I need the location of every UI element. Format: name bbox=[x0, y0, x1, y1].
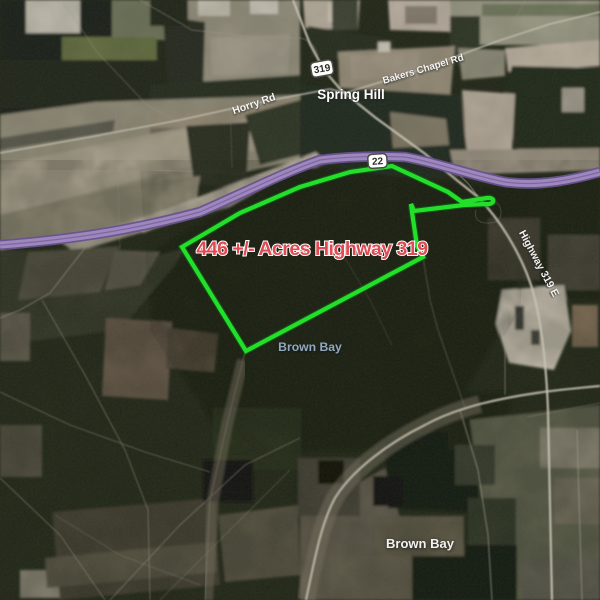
svg-text:Brown Bay: Brown Bay bbox=[386, 536, 455, 551]
svg-text:Spring Hill: Spring Hill bbox=[317, 87, 385, 102]
svg-text:446 +/- Acres Highway 319: 446 +/- Acres Highway 319 bbox=[196, 238, 428, 260]
svg-text:22: 22 bbox=[372, 156, 384, 168]
svg-text:Brown Bay: Brown Bay bbox=[278, 340, 342, 354]
